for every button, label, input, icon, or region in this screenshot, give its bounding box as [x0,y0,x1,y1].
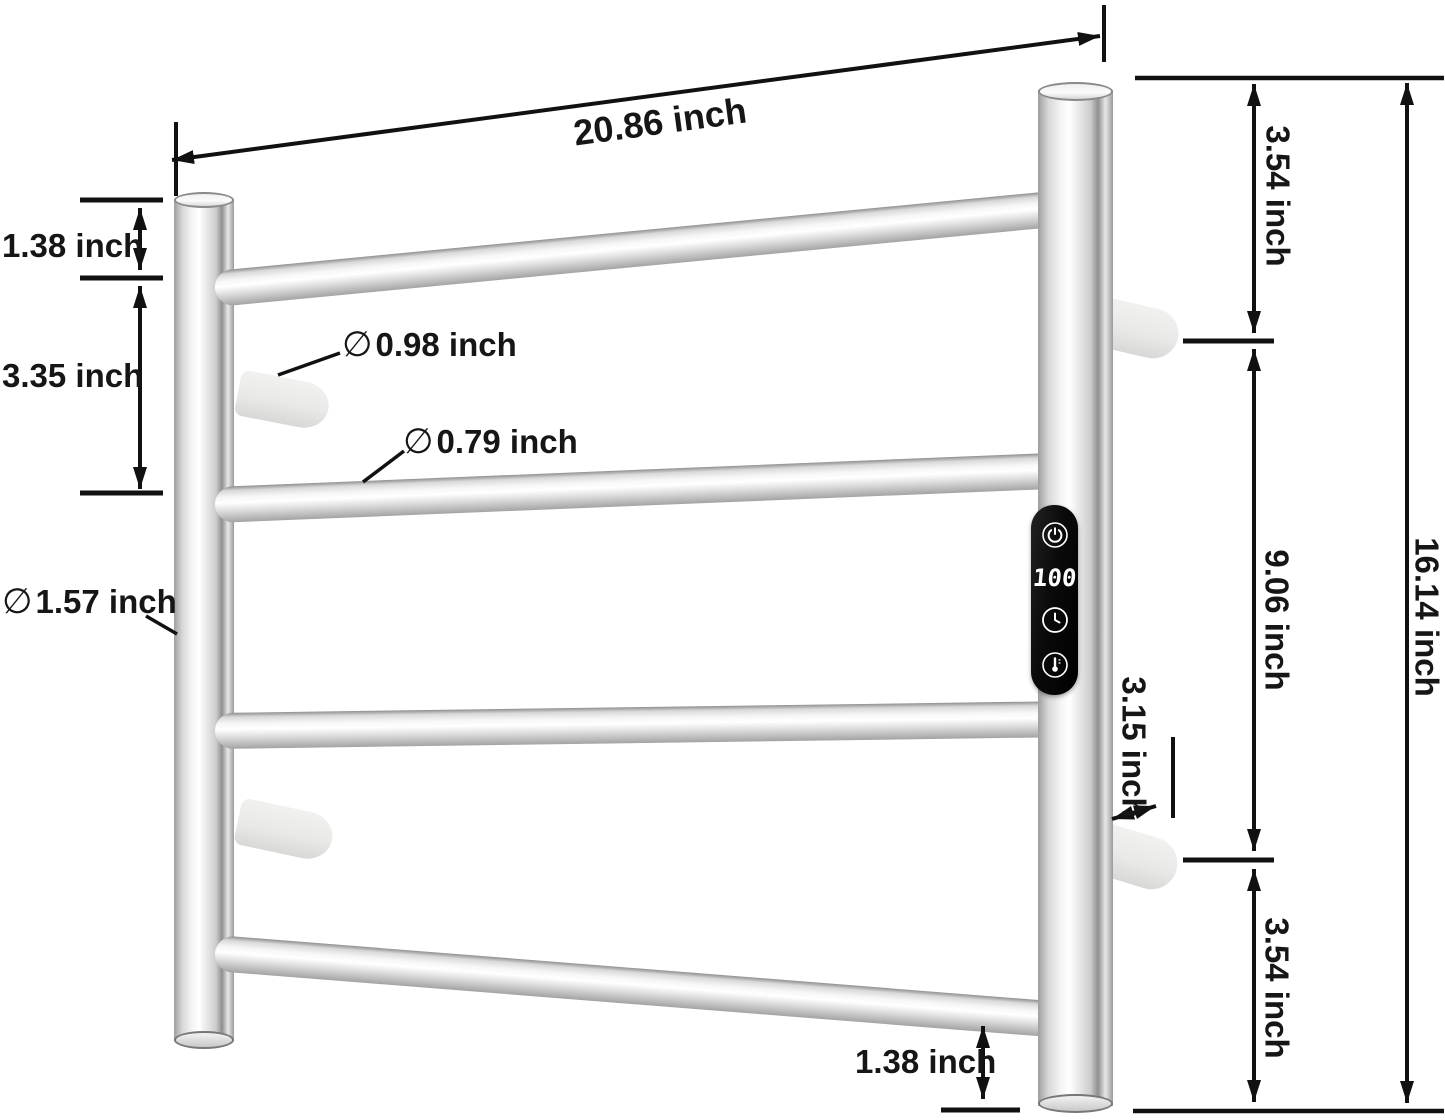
rung-4 [214,935,1077,1039]
right-post-bottom-cap [1038,1094,1113,1113]
wall-standoff-left-lower [233,798,337,864]
label-width-top: 20.86 inch [571,92,748,151]
label-right-middle-span: 9.06 inch [1261,549,1294,690]
leader-rung-diameter [363,451,404,482]
thermometer-icon [1041,651,1069,679]
label-post-diameter: ∅1.57 inch [2,584,177,619]
power-icon [1041,521,1069,549]
label-right-bottom-gap: 3.54 inch [1261,917,1294,1058]
dimension-diagram: 100 [0,0,1445,1120]
control-panel: 100 [1031,505,1078,695]
label-hook-diameter: ∅0.98 inch [342,327,517,362]
diameter-symbol: ∅ [2,582,36,621]
label-gap-bottom: 1.38 inch [855,1045,996,1078]
wall-standoff-left-upper [234,369,333,432]
left-post [174,199,234,1041]
label-wall-offset: 3.15 inch [1118,676,1151,817]
rung-2 [214,452,1076,523]
left-post-top-cap [174,192,234,208]
label-rung-spacing: 3.35 inch [2,359,122,392]
rung-1 [213,189,1077,307]
leader-hook-diameter [278,353,340,375]
label-gap-top-left: 1.38 inch [2,229,122,262]
right-post-top-cap [1038,82,1113,101]
label-total-height: 16.14 inch [1411,537,1444,697]
label-right-top-gap: 3.54 inch [1262,125,1295,266]
temperature-display: 100 [1032,566,1077,590]
diameter-symbol: ∅ [342,325,376,364]
rung-3 [215,701,1075,749]
diameter-symbol: ∅ [403,422,437,461]
left-post-bottom-cap [174,1031,234,1049]
label-rung-diameter: ∅0.79 inch [403,424,578,459]
clock-icon [1041,606,1069,634]
